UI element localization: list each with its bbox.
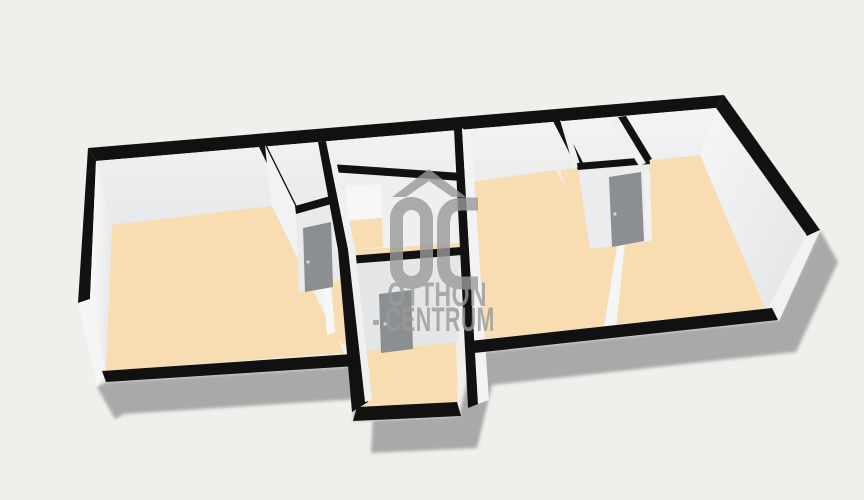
floorplan-page: OTTHON CENTRUM	[0, 0, 864, 500]
wall-wc-front	[577, 157, 652, 249]
door-wc	[609, 172, 644, 247]
watermark-dash	[373, 320, 379, 325]
door-closet-handle	[306, 260, 309, 263]
watermark-line2: CENTRUM	[385, 301, 494, 339]
bathroom-doorway-backwall	[346, 184, 382, 221]
door-closet	[303, 222, 333, 292]
floorplan-3d-view: OTTHON CENTRUM	[0, 0, 864, 500]
door-wc-handle	[613, 212, 616, 215]
